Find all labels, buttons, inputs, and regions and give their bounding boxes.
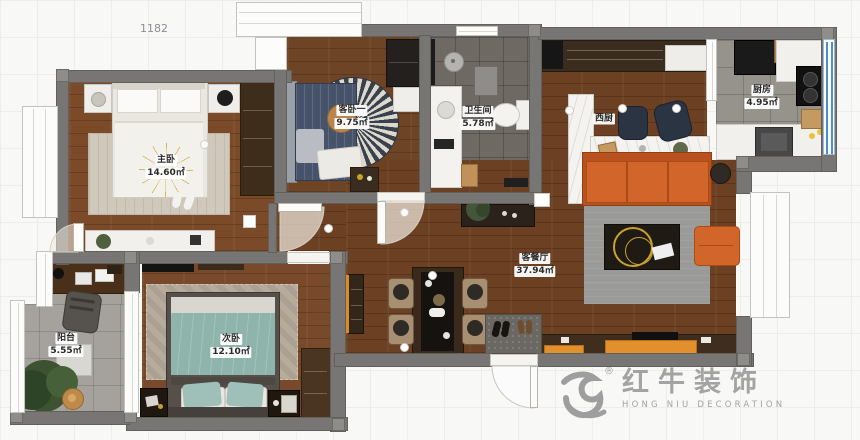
guest-bay-window	[236, 2, 362, 37]
wall-living-bottom-right	[536, 353, 754, 367]
downlight-icon	[400, 208, 409, 217]
second-media-shelf	[198, 264, 244, 270]
master-nightstand-right	[208, 84, 240, 113]
balcony-second-window	[124, 291, 139, 413]
wall-bath-bottom	[424, 192, 542, 204]
second-nightstand-left	[140, 388, 168, 417]
guest-dresser	[393, 87, 421, 112]
room-area: 5.55㎡	[48, 346, 83, 357]
wall-bath-right	[529, 24, 542, 205]
second-tv	[142, 264, 194, 272]
entry-doormat	[485, 314, 542, 354]
living-ottoman	[694, 226, 740, 266]
room-area: 12.10㎡	[210, 347, 251, 358]
living-bookshelf	[345, 274, 364, 334]
bay-window-niche	[255, 37, 287, 70]
wall-post	[528, 24, 541, 37]
bathroom-basket	[461, 164, 478, 187]
room-label-kitchen: 厨房 4.95㎡	[744, 85, 779, 109]
wall-living-bottom-left	[334, 353, 492, 367]
wall-guest-bath-divider	[419, 35, 431, 193]
wall-post	[737, 353, 750, 366]
second-wardrobe	[301, 348, 332, 418]
wall-post	[124, 251, 137, 264]
bathroom-shower-drain	[444, 52, 464, 72]
downlight-icon	[565, 106, 574, 115]
room-name: 客餐厅	[519, 253, 550, 264]
room-area: 37.94㎡	[514, 266, 555, 277]
downlight-icon	[428, 271, 437, 280]
hall-door-leaf	[278, 203, 322, 212]
dining-chair	[388, 278, 414, 309]
room-name: 西厨	[593, 114, 615, 125]
living-coffee-table	[604, 224, 680, 270]
room-name: 主卧	[155, 155, 177, 166]
kitchen-counter-bottom	[716, 124, 824, 160]
downlight-icon	[324, 224, 333, 233]
downlight-icon	[672, 104, 681, 113]
room-area: 5.78㎡	[460, 119, 495, 130]
hallway-plant-console	[461, 204, 535, 227]
bathroom-shelf	[474, 66, 498, 96]
room-name: 客卧一	[336, 105, 367, 116]
dining-chair	[462, 278, 488, 309]
entry-door-leaf	[530, 366, 538, 408]
wall-post	[736, 156, 749, 169]
balcony-stool	[62, 388, 84, 410]
room-label-master: 主卧 14.60㎡	[145, 155, 186, 179]
balcony-window-upper-left	[36, 251, 53, 307]
living-bay-window	[750, 192, 790, 318]
guest-wardrobe	[386, 39, 421, 87]
bathroom-window	[456, 26, 498, 36]
master-bay-window	[22, 106, 58, 218]
kitchen-blue-window	[823, 39, 835, 155]
room-label-balcony: 阳台 5.55㎡	[48, 333, 83, 357]
living-sofa	[582, 152, 712, 206]
second-nightstand-right	[268, 390, 300, 417]
registered-mark: ®	[604, 366, 614, 377]
downlight-icon	[243, 215, 256, 228]
downlight-icon	[400, 343, 409, 352]
room-area: 9.75㎡	[334, 118, 369, 129]
dining-chair	[388, 314, 414, 345]
wall-balcony-bottom	[10, 411, 130, 425]
guest-nightstand	[350, 167, 379, 192]
floor-plan: 1182 主卧 14.60㎡ 客卧一 9.75㎡ 卫生间 5.78㎡ 西厨 厨房…	[0, 0, 860, 440]
downlight-icon	[618, 104, 627, 113]
brand-name: 红牛装饰	[622, 368, 766, 398]
room-name: 厨房	[751, 85, 773, 96]
room-label-living-dining: 客餐厅 37.94㎡	[514, 253, 555, 277]
wall-post	[330, 251, 343, 264]
wall-post	[332, 418, 345, 431]
master-nightstand-left	[84, 84, 112, 113]
balcony-window-lower-left	[10, 300, 25, 413]
hall-door-arc	[276, 206, 328, 256]
room-label-bathroom: 卫生间 5.78㎡	[460, 106, 495, 130]
bathroom-mat	[504, 178, 528, 187]
room-label-guest: 客卧一 9.75㎡	[334, 105, 369, 129]
wall-post	[56, 69, 69, 82]
balcony-chair	[61, 290, 102, 335]
wall-master-top	[56, 70, 292, 83]
tv-console	[540, 334, 738, 354]
room-name: 卫生间	[462, 106, 493, 117]
downlight-icon	[534, 193, 550, 207]
room-area: 14.60㎡	[145, 168, 186, 179]
bathroom-toilet	[492, 100, 528, 128]
wall-second-right	[330, 251, 346, 432]
master-wardrobe	[240, 82, 277, 196]
bathroom-door-leaf	[377, 201, 386, 244]
kitchen-sliding-door	[706, 39, 717, 101]
kitchen-cooktop	[796, 66, 824, 106]
brand-logo: 红牛装饰 HONG NIU DECORATION ®	[556, 368, 860, 432]
master-balcony-door-leaf	[73, 223, 84, 252]
living-side-table	[710, 163, 731, 184]
room-name: 阳台	[55, 333, 77, 344]
balcony-plant	[18, 360, 70, 412]
west-kitchen-cabinet	[538, 40, 710, 72]
room-label-west-kitchen: 西厨	[593, 114, 615, 125]
wall-top-right	[538, 27, 837, 40]
dimension-label: 1182	[140, 22, 168, 35]
downlight-icon	[200, 140, 209, 149]
kitchen-fridge	[734, 40, 776, 75]
room-area: 4.95㎡	[744, 98, 779, 109]
wall-second-bottom	[126, 417, 348, 431]
room-name: 次卧	[220, 334, 242, 345]
bathroom-vanity	[428, 86, 462, 188]
room-label-second: 次卧 12.10㎡	[210, 334, 251, 358]
brand-subtitle: HONG NIU DECORATION	[622, 400, 785, 410]
dining-table	[412, 267, 464, 357]
balcony-desk	[46, 263, 126, 294]
